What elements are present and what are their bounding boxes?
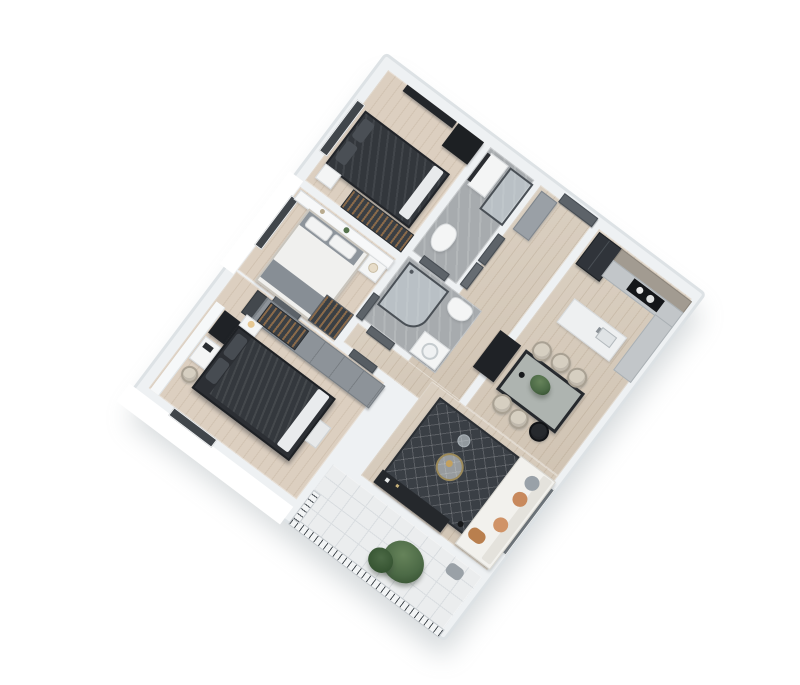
render-canvas bbox=[0, 0, 800, 685]
apartment-plan bbox=[127, 56, 702, 638]
